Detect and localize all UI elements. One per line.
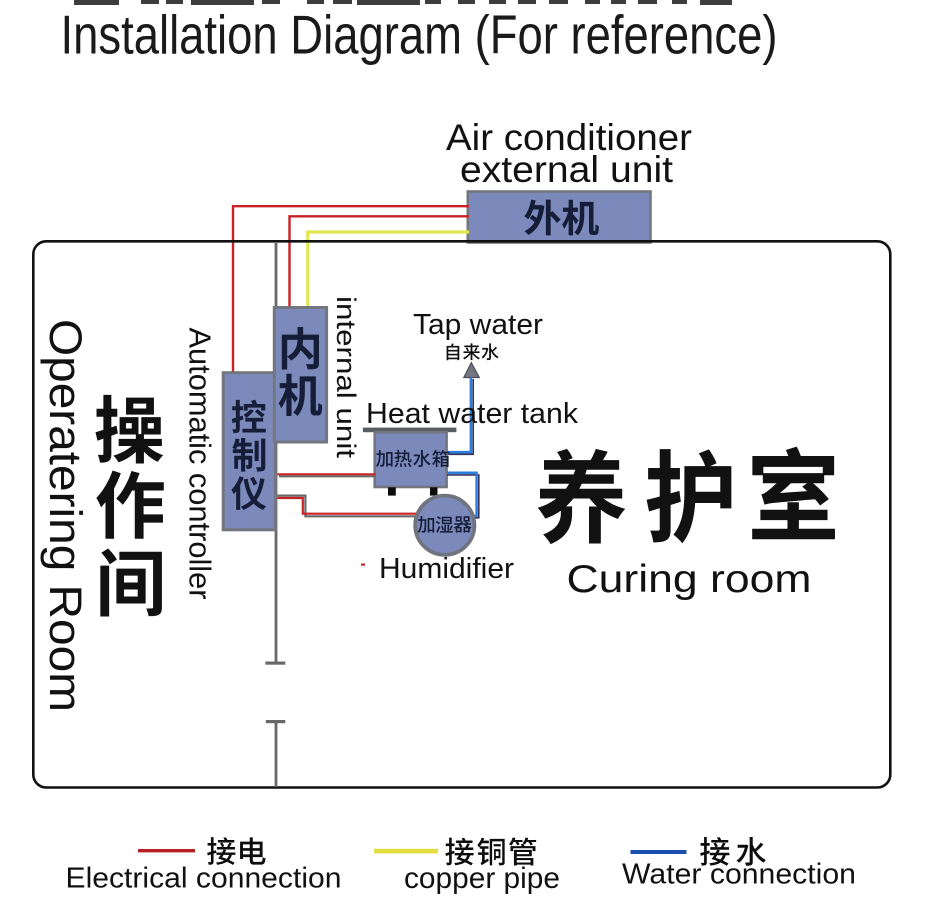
svg-text:Installation Diagram (For refe: Installation Diagram (For reference): [61, 4, 778, 66]
svg-text:Heat water tank: Heat water tank: [366, 398, 579, 430]
svg-text:Operatering Room: Operatering Room: [40, 319, 91, 712]
svg-text:internal unit: internal unit: [331, 296, 361, 459]
svg-text:external unit: external unit: [460, 149, 674, 190]
svg-text:Tap water: Tap water: [413, 309, 543, 341]
svg-text:Automatic controller: Automatic controller: [183, 328, 218, 600]
svg-text:Electrical connection: Electrical connection: [66, 863, 342, 895]
svg-text:Curing room: Curing room: [567, 558, 812, 601]
svg-text:Water connection: Water connection: [622, 859, 856, 891]
svg-text:copper pipe: copper pipe: [404, 862, 560, 895]
svg-text:Humidifier: Humidifier: [379, 553, 514, 585]
